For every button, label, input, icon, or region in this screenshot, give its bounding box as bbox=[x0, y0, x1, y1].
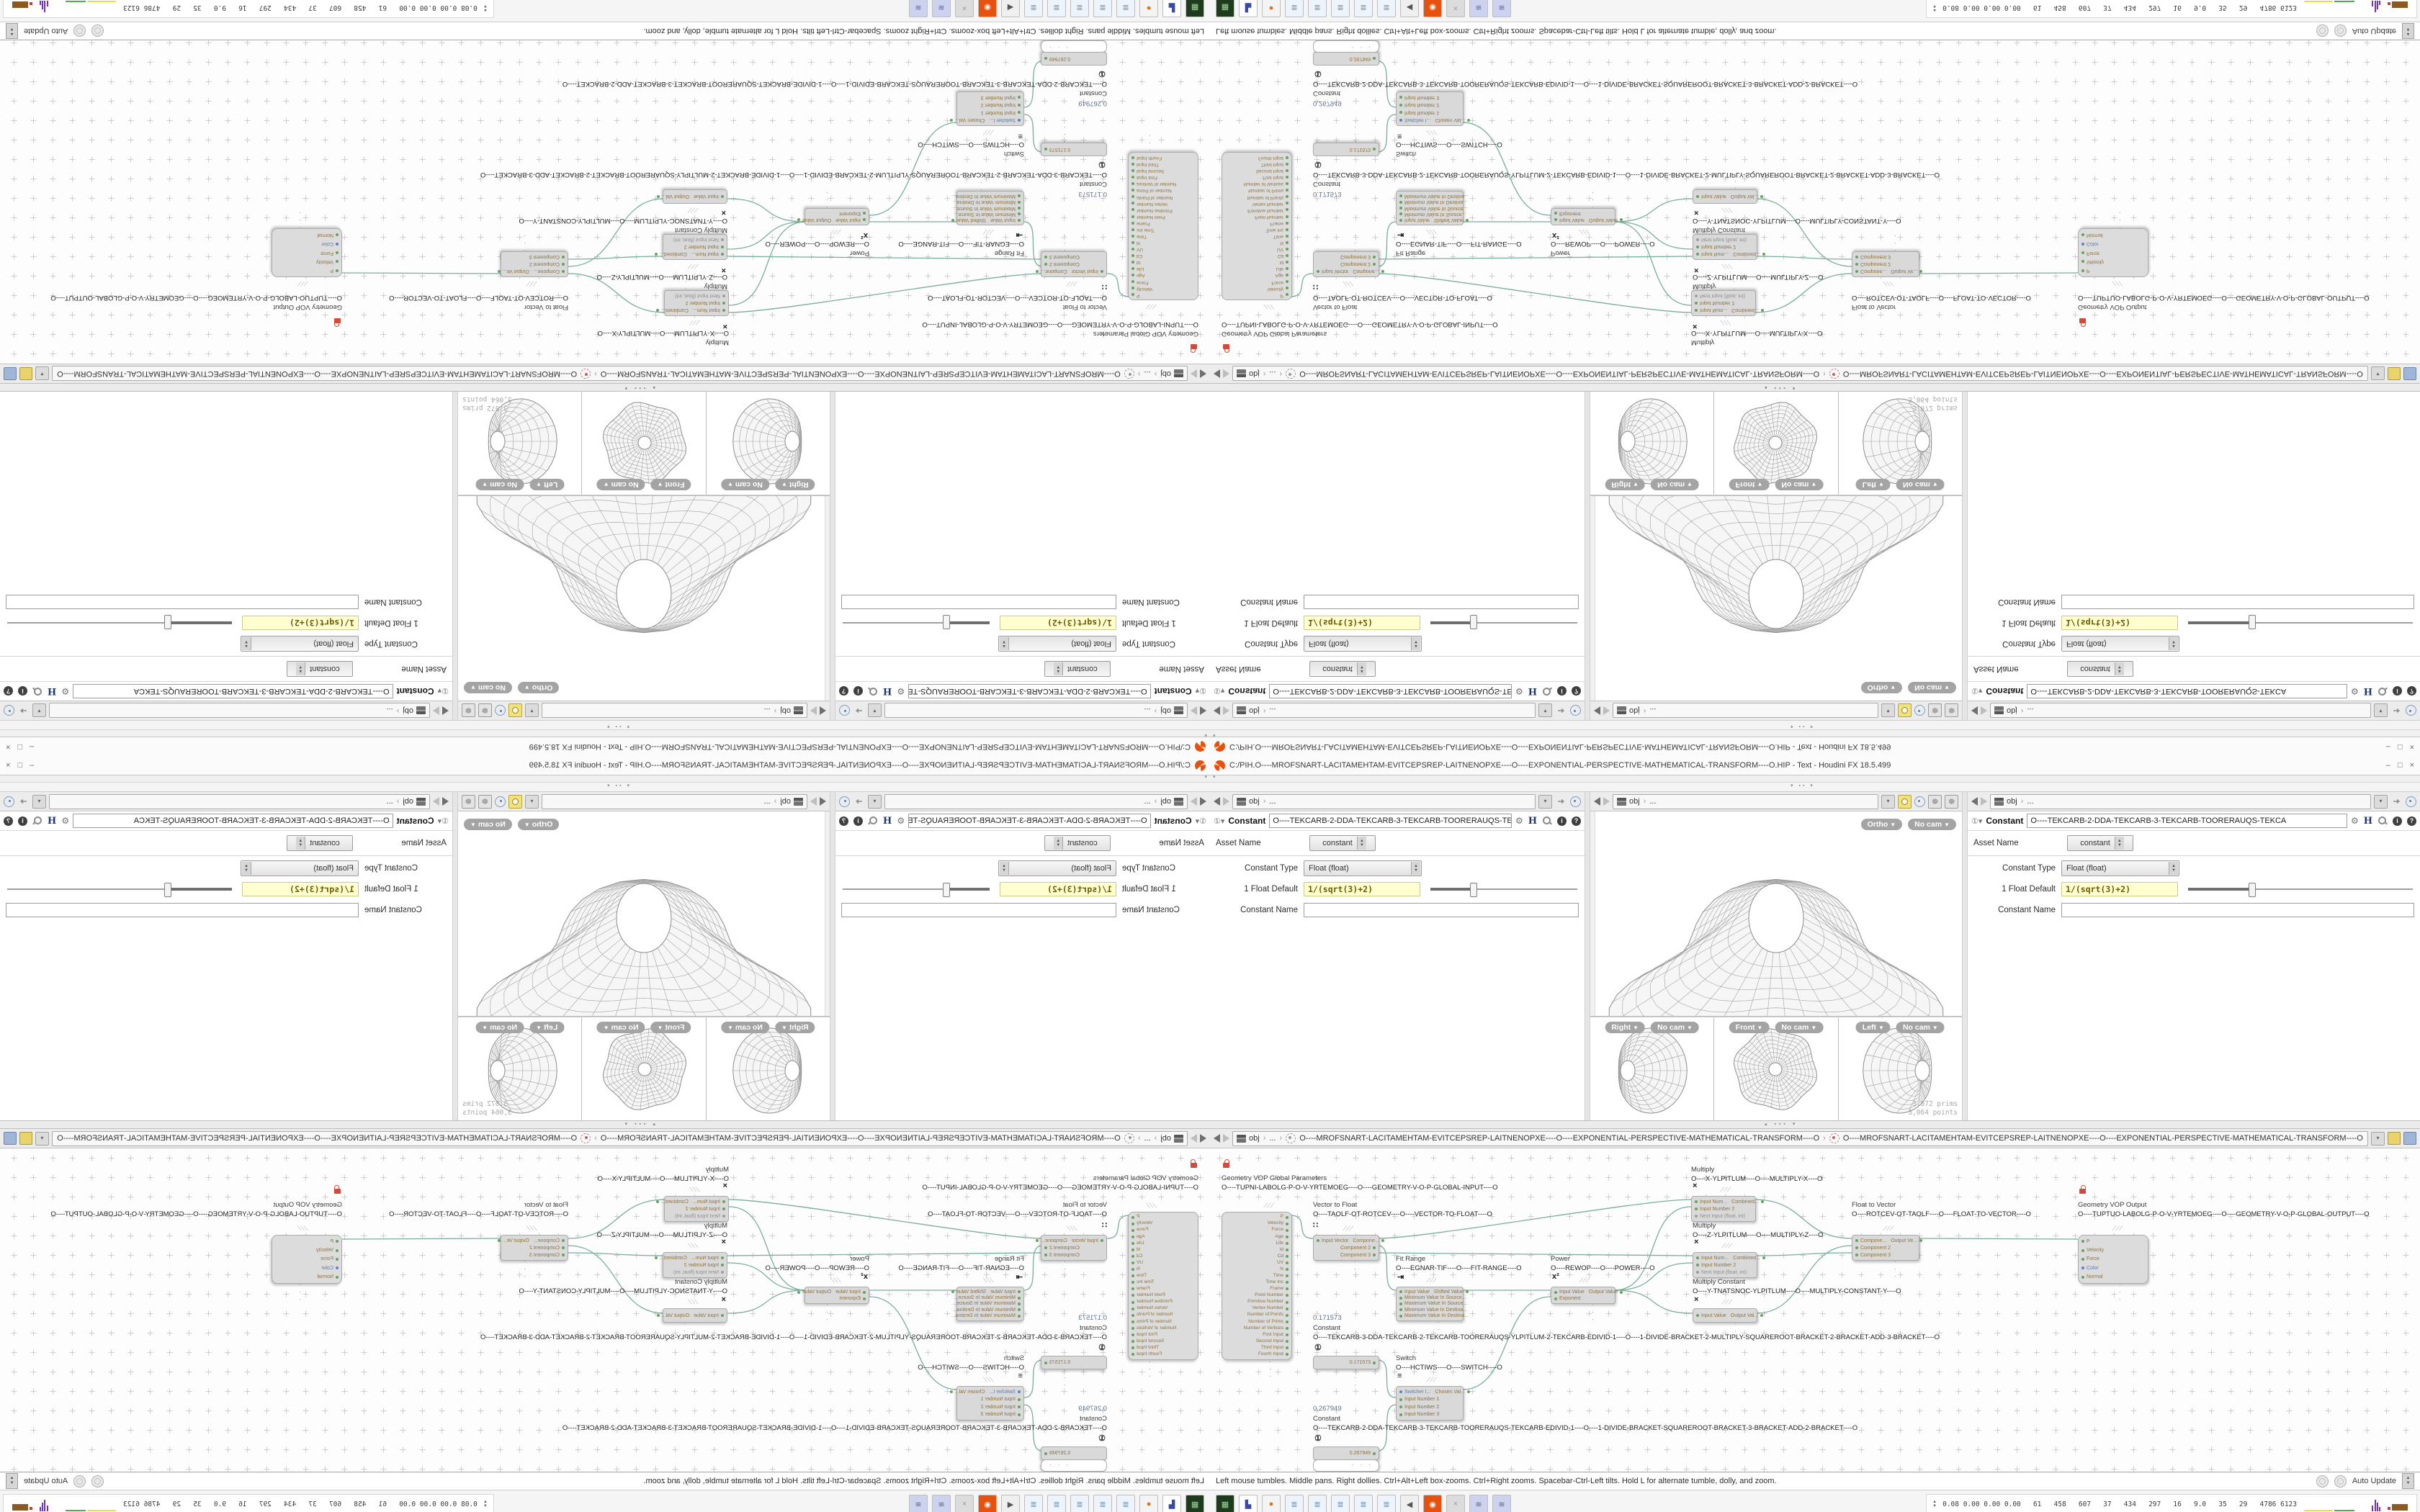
pin-icon[interactable] bbox=[1555, 796, 1567, 808]
horizontal-splitter[interactable]: ▴ ▪▪▪ ▾ bbox=[0, 383, 1210, 392]
node-body[interactable]: Compone...Output Ve...Component 2Compone… bbox=[1852, 1235, 1919, 1261]
path-dropdown[interactable]: ▾ bbox=[868, 704, 882, 718]
constant-type-select[interactable]: Float (float)▲▼ bbox=[2061, 636, 2179, 652]
network-overview-icon[interactable] bbox=[2403, 367, 2416, 380]
nav-forward-icon[interactable] bbox=[1191, 797, 1197, 806]
nav-back-icon[interactable] bbox=[1594, 797, 1600, 806]
node-body[interactable]: 0.171573 bbox=[1313, 1356, 1379, 1369]
breadcrumb[interactable]: obj › ... bbox=[1990, 794, 2371, 809]
node-edit-box[interactable]: · · · bbox=[1041, 1459, 1107, 1472]
slider-handle[interactable] bbox=[943, 883, 950, 897]
constant-type-select[interactable]: Float (float)▲▼ bbox=[2061, 860, 2179, 876]
maximize-button[interactable]: □ bbox=[2398, 742, 2403, 751]
constant-type-select[interactable]: Float (float)▲▼ bbox=[998, 636, 1116, 652]
help-icon[interactable]: ? bbox=[1572, 687, 1581, 696]
node-body[interactable]: Input VectorCompone...Component 2Compone… bbox=[1041, 1235, 1107, 1261]
view-menu-pill[interactable]: Right▼ bbox=[1605, 1022, 1645, 1033]
link-target-icon[interactable] bbox=[2406, 706, 2416, 716]
taskbar-firefox-icon[interactable]: ● bbox=[1262, 0, 1281, 17]
spinner-icon[interactable]: ▲▼ bbox=[2169, 637, 2178, 650]
help-icon[interactable]: ? bbox=[4, 687, 13, 696]
nav-back-icon[interactable] bbox=[1971, 706, 1978, 715]
taskbar-launcher-icon[interactable]: ▦ bbox=[1186, 0, 1204, 17]
node-body[interactable]: 0.267949 bbox=[1313, 1446, 1379, 1460]
spinner-icon[interactable]: ▲▼ bbox=[296, 837, 305, 850]
taskbar-inactive-icon[interactable]: × bbox=[955, 1495, 974, 1512]
network-overview-icon[interactable] bbox=[2403, 1132, 2416, 1145]
view-menu-pill[interactable]: Left▼ bbox=[529, 479, 564, 490]
node-edit-box[interactable]: · · · bbox=[1041, 40, 1107, 53]
nav-back-icon[interactable] bbox=[1214, 1134, 1220, 1143]
link-target-icon[interactable] bbox=[4, 796, 14, 807]
nav-forward-icon[interactable] bbox=[433, 706, 439, 715]
asset-name-select[interactable]: constant▲▼ bbox=[2067, 661, 2133, 677]
path-dropdown[interactable]: ▾ bbox=[525, 704, 539, 718]
node-body[interactable]: PVelocityForceColorNormal bbox=[272, 1235, 342, 1284]
viewport-right[interactable]: Right▼ No cam▼ bbox=[706, 1017, 830, 1120]
view-menu-pill[interactable]: Front▼ bbox=[651, 1022, 691, 1033]
nav-back-icon[interactable] bbox=[1214, 797, 1220, 806]
node-body[interactable]: 0.267949 bbox=[1041, 52, 1107, 66]
pin-icon[interactable] bbox=[17, 796, 30, 808]
pivot-icon[interactable] bbox=[495, 796, 506, 807]
nav-back-icon[interactable] bbox=[1200, 797, 1206, 806]
taskbar-launcher-icon[interactable]: ▦ bbox=[1216, 1495, 1234, 1512]
spinner-icon[interactable]: ▲▼ bbox=[1054, 662, 1063, 675]
shading-cube-icon[interactable] bbox=[1928, 795, 1942, 809]
slider-handle[interactable] bbox=[943, 615, 950, 629]
gear-icon[interactable]: ⚙ bbox=[61, 686, 69, 696]
info-icon[interactable]: i bbox=[18, 687, 27, 696]
node-body[interactable]: Input VectorCompone...Component 2Compone… bbox=[1313, 1235, 1379, 1261]
info-icon[interactable]: i bbox=[1557, 816, 1567, 826]
breadcrumb-ellipsis[interactable]: ... bbox=[1144, 1134, 1150, 1143]
view-menu-pill[interactable]: Left▼ bbox=[529, 1022, 564, 1033]
network-overview-icon[interactable] bbox=[4, 1132, 17, 1145]
node-name-field[interactable]: O----TEKCARB-2-DDA-TEKCARB-3-TEKCARB-TOO… bbox=[908, 684, 1151, 698]
gear-icon[interactable]: ⚙ bbox=[897, 686, 905, 696]
spinner-icon[interactable]: ▲▼ bbox=[1000, 637, 1009, 650]
camera-menu-pill[interactable]: No cam▼ bbox=[1651, 1022, 1699, 1033]
vertical-splitter[interactable] bbox=[1962, 392, 1968, 720]
snap-cube-icon[interactable] bbox=[462, 795, 475, 809]
network-overview-icon[interactable] bbox=[4, 367, 17, 380]
maximize-button[interactable]: □ bbox=[17, 742, 22, 751]
spinner-icon[interactable]: ▲▼ bbox=[1411, 637, 1420, 650]
camera-menu-pill[interactable]: No cam▼ bbox=[1775, 479, 1823, 490]
link-target-icon[interactable] bbox=[1570, 706, 1581, 716]
taskbar-save-icon[interactable]: ▙ bbox=[1162, 1495, 1181, 1512]
breadcrumb[interactable]: obj › ... bbox=[1613, 703, 1878, 719]
houdini-help-icon[interactable]: H bbox=[48, 816, 56, 827]
camera-menu-pill[interactable]: No cam▼ bbox=[1908, 819, 1956, 830]
taskbar-notes-icon[interactable]: ≣ bbox=[1093, 0, 1112, 17]
link-target-icon[interactable] bbox=[839, 706, 850, 716]
constant-name-field[interactable] bbox=[841, 595, 1116, 609]
viewport-right[interactable]: Right▼ No cam▼ bbox=[1590, 392, 1714, 495]
close-button[interactable]: × bbox=[2410, 742, 2414, 751]
path-dropdown[interactable]: ▾ bbox=[32, 795, 46, 809]
cook-icon[interactable] bbox=[73, 1475, 86, 1488]
taskbar-notes-icon[interactable]: ≣ bbox=[1024, 1495, 1043, 1512]
obj-chip[interactable]: obj bbox=[1160, 369, 1183, 379]
float-default-slider[interactable] bbox=[7, 616, 232, 629]
node-body[interactable]: Input Num...Combined...Input Number 2Nex… bbox=[1693, 1252, 1757, 1278]
pivot-icon[interactable] bbox=[495, 706, 506, 716]
network-breadcrumb[interactable]: obj › ... › O----MROFSNART-LACITAMEHTAM-… bbox=[52, 366, 1188, 382]
minimize-button[interactable]: – bbox=[2386, 761, 2390, 770]
minimize-button[interactable]: – bbox=[30, 742, 34, 751]
camera-menu-pill[interactable]: No cam▼ bbox=[597, 1022, 645, 1033]
info-icon[interactable]: i bbox=[1557, 687, 1567, 696]
camera-menu-pill[interactable]: No cam▼ bbox=[721, 1022, 769, 1033]
path-dropdown[interactable]: ▾ bbox=[1881, 795, 1895, 809]
taskbar-firefox-icon[interactable]: ● bbox=[1139, 0, 1158, 17]
taskbar-script-icon[interactable]: ≋ bbox=[932, 1495, 951, 1512]
help-icon[interactable]: ? bbox=[2407, 816, 2416, 826]
taskbar-save-icon[interactable]: ▙ bbox=[1162, 0, 1181, 17]
camera-menu-pill[interactable]: No cam▼ bbox=[597, 479, 645, 490]
slider-handle[interactable] bbox=[164, 883, 171, 897]
spinner-icon[interactable]: ▲▼ bbox=[2115, 837, 2124, 850]
node-body[interactable]: Input Num...Combined...Input Number 2Nex… bbox=[1691, 1196, 1756, 1222]
camera-menu-pill[interactable]: No cam▼ bbox=[1896, 479, 1945, 490]
collapsed-toolbar-bar[interactable]: ▾ ▪▪ ▾ bbox=[1210, 720, 2420, 729]
obj-chip[interactable]: obj bbox=[780, 706, 803, 716]
viewport-right[interactable]: Right▼ No cam▼ bbox=[706, 392, 830, 495]
breadcrumb-geo-node[interactable]: O----MROFSNART-LACITAMEHTAM-EVITCEPSREP-… bbox=[1299, 369, 1819, 378]
node-name-field[interactable]: O----TEKCARB-2-DDA-TEKCARB-3-TEKCARB-TOO… bbox=[2027, 814, 2347, 828]
breadcrumb-ellipsis[interactable]: ... bbox=[386, 706, 393, 715]
float-default-field[interactable]: 1/(sqrt(3)+2) bbox=[2061, 616, 2178, 630]
taskbar-notes-icon[interactable]: ≣ bbox=[1024, 0, 1043, 17]
taskbar-notes-icon[interactable]: ≣ bbox=[1093, 1495, 1112, 1512]
highlight-icon[interactable] bbox=[1898, 795, 1912, 809]
taskbar-notes-icon[interactable]: ≣ bbox=[1116, 1495, 1135, 1512]
breadcrumb[interactable]: obj › ... bbox=[1232, 794, 1536, 809]
close-button[interactable]: × bbox=[6, 761, 10, 770]
view-menu-pill[interactable]: Front▼ bbox=[1729, 479, 1770, 490]
camera-menu-pill[interactable]: No cam▼ bbox=[1775, 1022, 1823, 1033]
camera-menu-pill[interactable]: No cam▼ bbox=[464, 819, 512, 830]
node-body[interactable]: Input ValueOutput Val... bbox=[1693, 1308, 1757, 1323]
taskbar-script-icon[interactable]: ≋ bbox=[909, 0, 928, 17]
taskbar-launcher-icon[interactable]: ▦ bbox=[1216, 0, 1234, 17]
node-body[interactable]: PVelocityForceAgeLifeIdCdUVNTimeTime Inc… bbox=[1222, 152, 1292, 300]
spinner-icon[interactable]: ▲▼ bbox=[1357, 662, 1366, 675]
constant-name-field[interactable] bbox=[6, 595, 359, 609]
taskbar-notes-icon[interactable]: ≣ bbox=[1070, 0, 1089, 17]
node-body[interactable]: PVelocityForceAgeLifeIdCdUVNTimeTime Inc… bbox=[1222, 1212, 1292, 1360]
spinner-icon[interactable]: ▲▼ bbox=[296, 662, 305, 675]
camera-menu-pill[interactable]: No cam▼ bbox=[1908, 682, 1956, 693]
breadcrumb[interactable]: obj › ... bbox=[884, 703, 1188, 719]
maximize-button[interactable]: □ bbox=[17, 761, 22, 770]
network-editor[interactable]: Geometry VOP Global ParametersO----TUPNI… bbox=[1210, 1148, 2420, 1472]
collapsed-shelf-bar[interactable]: ▾ bbox=[0, 775, 1210, 783]
taskbar-notes-icon[interactable]: ≣ bbox=[1331, 0, 1350, 17]
float-default-field[interactable]: 1/(sqrt(3)+2) bbox=[242, 882, 359, 896]
memory-icon[interactable] bbox=[2316, 25, 2329, 37]
houdini-help-icon[interactable]: H bbox=[2364, 686, 2372, 697]
network-editor[interactable]: Geometry VOP Global ParametersO----TUPNI… bbox=[0, 40, 1210, 364]
float-default-slider[interactable] bbox=[2188, 616, 2413, 629]
pivot-icon[interactable] bbox=[1914, 706, 1925, 716]
nav-forward-icon[interactable] bbox=[1191, 369, 1197, 378]
camera-menu-pill[interactable]: No cam▼ bbox=[475, 479, 524, 490]
taskbar-houdini-icon[interactable]: ◉ bbox=[1423, 0, 1442, 17]
breadcrumb-vop-node[interactable]: O----MROFSNART-LACITAMEHTAM-EVITCEPSREP-… bbox=[1843, 1134, 2363, 1143]
houdini-help-icon[interactable]: H bbox=[883, 686, 892, 697]
obj-chip[interactable]: obj bbox=[1994, 796, 2017, 807]
vertical-splitter[interactable] bbox=[1585, 392, 1590, 720]
minimize-button[interactable]: – bbox=[2386, 742, 2390, 751]
viewport-right[interactable]: Right▼ No cam▼ bbox=[1590, 1017, 1714, 1120]
viewport-left[interactable]: Left▼ No cam▼ 3,072 prims 3,064 points bbox=[458, 1017, 581, 1120]
gear-icon[interactable]: ⚙ bbox=[1515, 816, 1523, 826]
spinner-icon[interactable]: ▲▼ bbox=[1357, 837, 1366, 850]
highlight-icon[interactable] bbox=[508, 795, 522, 809]
taskbar-notes-icon[interactable]: ≣ bbox=[1354, 1495, 1373, 1512]
horizontal-splitter[interactable]: ▴ ▪▪▪ ▾ bbox=[0, 1120, 1210, 1129]
node-body[interactable]: 0.171573 bbox=[1313, 143, 1379, 156]
pin-icon[interactable] bbox=[2390, 705, 2403, 717]
path-dropdown[interactable]: ▾ bbox=[1538, 795, 1552, 809]
info-icon[interactable]: i bbox=[18, 816, 27, 826]
breadcrumb-ellipsis[interactable]: ... bbox=[1144, 706, 1150, 715]
collapsed-toolbar-bar[interactable]: ▾ ▪▪ ▾ bbox=[1210, 783, 2420, 792]
splitter-grip-icon[interactable]: ▴ ▪▪▪ ▾ bbox=[622, 1121, 655, 1127]
network-editor[interactable]: Geometry VOP Global ParametersO----TUPNI… bbox=[1210, 40, 2420, 364]
vertical-splitter[interactable] bbox=[830, 792, 835, 1120]
float-default-field[interactable]: 1/(sqrt(3)+2) bbox=[242, 616, 359, 630]
spinner-icon[interactable]: ▲▼ bbox=[2169, 862, 2178, 875]
network-breadcrumb[interactable]: obj › ... › O----MROFSNART-LACITAMEHTAM-… bbox=[52, 1131, 1188, 1146]
constant-name-field[interactable] bbox=[1304, 903, 1579, 917]
node-body[interactable]: PVelocityForceAgeLifeIdCdUVNTimeTime Inc… bbox=[1128, 1212, 1198, 1360]
camera-menu-pill[interactable]: No cam▼ bbox=[464, 682, 512, 693]
obj-chip[interactable]: obj bbox=[1617, 796, 1640, 807]
node-body[interactable]: 0.171573 bbox=[1041, 1356, 1107, 1369]
nav-forward-icon[interactable] bbox=[433, 797, 439, 806]
path-dropdown[interactable]: ▾ bbox=[32, 704, 46, 718]
constant-type-select[interactable]: Float (float)▲▼ bbox=[241, 860, 359, 876]
camera-menu-pill[interactable]: No cam▼ bbox=[1896, 1022, 1945, 1033]
node-name-field[interactable]: O----TEKCARB-2-DDA-TEKCARB-3-TEKCARB-TOO… bbox=[908, 814, 1151, 828]
nav-back-icon[interactable] bbox=[820, 706, 826, 715]
cook-icon[interactable] bbox=[2334, 1475, 2347, 1488]
constant-name-field[interactable] bbox=[2061, 595, 2414, 609]
asset-name-select[interactable]: constant▲▼ bbox=[1044, 661, 1111, 677]
taskbar-save-icon[interactable]: ▙ bbox=[1239, 0, 1258, 17]
auto-update-spinner[interactable]: ▲▼ bbox=[6, 23, 18, 39]
taskbar-script-icon[interactable]: ≋ bbox=[909, 1495, 928, 1512]
collapsed-shelf-bar[interactable]: ▾ bbox=[1210, 775, 2420, 783]
breadcrumb-geo-node[interactable]: O----MROFSNART-LACITAMEHTAM-EVITCEPSREP-… bbox=[601, 369, 1121, 378]
breadcrumb-ellipsis[interactable]: ... bbox=[1144, 369, 1150, 378]
auto-update-spinner[interactable]: ▲▼ bbox=[2402, 1473, 2414, 1489]
taskbar-notes-icon[interactable]: ≣ bbox=[1308, 0, 1327, 17]
nav-forward-icon[interactable] bbox=[1223, 369, 1229, 378]
node-name-field[interactable]: O----TEKCARB-2-DDA-TEKCARB-3-TEKCARB-TOO… bbox=[1269, 684, 1512, 698]
node-body[interactable]: Input ValueShifted ValueMinimum Value In… bbox=[956, 1287, 1024, 1321]
constant-name-field[interactable] bbox=[2061, 903, 2414, 917]
collapsed-toolbar-bar[interactable]: ▾ ▪▪ ▾ bbox=[0, 783, 1210, 792]
view-menu-pill[interactable]: Right▼ bbox=[775, 479, 815, 490]
view-menu-pill[interactable]: Ortho▼ bbox=[518, 819, 560, 830]
memory-icon[interactable] bbox=[2316, 1475, 2329, 1488]
minimize-button[interactable]: – bbox=[30, 761, 34, 770]
breadcrumb-ellipsis[interactable]: ... bbox=[763, 797, 770, 806]
search-icon[interactable] bbox=[868, 686, 878, 696]
breadcrumb-ellipsis[interactable]: ... bbox=[1269, 369, 1276, 378]
perspective-viewport[interactable]: Ortho▼ No cam▼ bbox=[458, 811, 830, 1017]
nav-forward-icon[interactable] bbox=[1981, 706, 1987, 715]
node-name-field[interactable]: O----TEKCARB-2-DDA-TEKCARB-3-TEKCARB-TOO… bbox=[73, 684, 393, 698]
float-default-slider[interactable] bbox=[2188, 883, 2413, 896]
nav-forward-icon[interactable] bbox=[1223, 1134, 1229, 1143]
float-default-field[interactable]: 1/(sqrt(3)+2) bbox=[1304, 882, 1420, 896]
path-dropdown[interactable]: ▾ bbox=[35, 367, 49, 381]
pin-icon[interactable] bbox=[2390, 796, 2403, 808]
obj-chip[interactable]: obj bbox=[1237, 369, 1260, 379]
node-body[interactable]: Input ValueOutput Val... bbox=[663, 189, 727, 204]
link-target-icon[interactable] bbox=[839, 796, 850, 807]
nav-forward-icon[interactable] bbox=[810, 706, 817, 715]
link-target-icon[interactable] bbox=[2406, 796, 2416, 807]
vertical-splitter[interactable] bbox=[452, 792, 458, 1120]
gear-icon[interactable]: ⚙ bbox=[2351, 686, 2359, 696]
node-body[interactable]: PVelocityForceColorNormal bbox=[272, 228, 342, 277]
float-default-slider[interactable] bbox=[7, 883, 232, 896]
view-menu-pill[interactable]: Left▼ bbox=[1856, 479, 1891, 490]
taskbar-notes-icon[interactable]: ≣ bbox=[1047, 1495, 1066, 1512]
viewport-front[interactable]: Front▼ No cam▼ bbox=[581, 392, 705, 495]
node-body[interactable]: Switcher I...Chosen Val...Input Number 1… bbox=[1396, 91, 1464, 126]
breadcrumb[interactable]: obj › ... bbox=[884, 794, 1188, 809]
perspective-viewport[interactable]: Ortho▼ No cam▼ bbox=[1590, 811, 1962, 1017]
auto-update-label[interactable]: Auto Update bbox=[24, 27, 68, 35]
pin-icon[interactable] bbox=[853, 705, 865, 717]
pin-icon[interactable] bbox=[853, 796, 865, 808]
breadcrumb[interactable]: obj › ... bbox=[1232, 703, 1536, 719]
houdini-help-icon[interactable]: H bbox=[1528, 816, 1537, 827]
houdini-help-icon[interactable]: H bbox=[883, 816, 892, 827]
info-icon[interactable]: i bbox=[853, 816, 863, 826]
help-icon[interactable]: ? bbox=[1572, 816, 1581, 826]
view-menu-pill[interactable]: Ortho▼ bbox=[1861, 682, 1903, 693]
spinner-icon[interactable]: ▲▼ bbox=[1411, 862, 1420, 875]
node-body[interactable]: PVelocityForceColorNormal bbox=[2078, 1235, 2148, 1284]
slider-handle[interactable] bbox=[1470, 615, 1477, 629]
slider-handle[interactable] bbox=[2249, 883, 2256, 897]
memory-icon[interactable] bbox=[91, 1475, 104, 1488]
float-default-slider[interactable] bbox=[843, 883, 990, 896]
node-body[interactable]: Compone...Output Ve...Component 2Compone… bbox=[1852, 251, 1919, 277]
path-dropdown[interactable]: ▾ bbox=[2374, 704, 2388, 718]
taskbar-volume-icon[interactable]: ◀ bbox=[1400, 1495, 1419, 1512]
gear-icon[interactable]: ⚙ bbox=[2351, 816, 2359, 826]
node-name-field[interactable]: O----TEKCARB-2-DDA-TEKCARB-3-TEKCARB-TOO… bbox=[2027, 684, 2347, 698]
search-icon[interactable] bbox=[1542, 816, 1552, 826]
nav-forward-icon[interactable] bbox=[1191, 1134, 1197, 1143]
node-body[interactable]: Input ValueOutput ValueExponent bbox=[805, 1287, 869, 1304]
houdini-help-icon[interactable]: H bbox=[48, 686, 56, 697]
breadcrumb[interactable]: obj › ... bbox=[1990, 703, 2371, 719]
taskbar-inactive-icon[interactable]: × bbox=[1446, 1495, 1465, 1512]
viewport-left[interactable]: Left▼ No cam▼ 3,072 prims 3,064 points bbox=[1839, 392, 1962, 495]
view-menu-pill[interactable]: Front▼ bbox=[1729, 1022, 1770, 1033]
shading-cube-icon[interactable] bbox=[478, 795, 492, 809]
node-body[interactable]: Input ValueOutput ValueExponent bbox=[1551, 208, 1615, 225]
perspective-viewport[interactable]: Ortho▼ No cam▼ bbox=[458, 495, 830, 701]
path-dropdown[interactable]: ▾ bbox=[1881, 704, 1895, 718]
camera-menu-pill[interactable]: No cam▼ bbox=[1651, 479, 1699, 490]
horizontal-splitter[interactable]: ▴ ▪▪▪ ▾ bbox=[1210, 1120, 2420, 1129]
snap-cube-icon[interactable] bbox=[462, 704, 475, 718]
breadcrumb-geo-node[interactable]: O----MROFSNART-LACITAMEHTAM-EVITCEPSREP-… bbox=[601, 1134, 1121, 1143]
node-edit-box[interactable]: · · · bbox=[1313, 40, 1379, 53]
auto-update-label[interactable]: Auto Update bbox=[24, 1477, 68, 1485]
taskbar-notes-icon[interactable]: ≣ bbox=[1285, 0, 1304, 17]
memory-icon[interactable] bbox=[91, 25, 104, 37]
gear-icon[interactable]: ⚙ bbox=[1515, 686, 1523, 696]
help-icon[interactable]: ? bbox=[2407, 687, 2416, 696]
taskbar-notes-icon[interactable]: ≣ bbox=[1070, 1495, 1089, 1512]
taskbar-notes-icon[interactable]: ≣ bbox=[1285, 1495, 1304, 1512]
node-body[interactable]: Input ValueOutput ValueExponent bbox=[1551, 1287, 1615, 1304]
vertical-splitter[interactable] bbox=[830, 392, 835, 720]
nav-back-icon[interactable] bbox=[1214, 706, 1220, 715]
network-breadcrumb[interactable]: obj › ... › O----MROFSNART-LACITAMEHTAM-… bbox=[1232, 366, 2368, 382]
node-body[interactable]: Input VectorCompone...Component 2Compone… bbox=[1313, 251, 1379, 277]
taskbar-script-icon[interactable]: ≋ bbox=[932, 0, 951, 17]
taskbar-volume-icon[interactable]: ◀ bbox=[1001, 0, 1020, 17]
obj-chip[interactable]: obj bbox=[1237, 796, 1260, 807]
constant-name-field[interactable] bbox=[841, 903, 1116, 917]
constant-type-select[interactable]: Float (float)▲▼ bbox=[1304, 860, 1422, 876]
close-button[interactable]: × bbox=[2410, 761, 2414, 770]
viewport-front[interactable]: Front▼ No cam▼ bbox=[1714, 392, 1838, 495]
taskbar-notes-icon[interactable]: ≣ bbox=[1377, 0, 1396, 17]
search-icon[interactable] bbox=[868, 816, 878, 826]
view-menu-pill[interactable]: Left▼ bbox=[1856, 1022, 1891, 1033]
auto-update-label[interactable]: Auto Update bbox=[2352, 27, 2396, 35]
breadcrumb-ellipsis[interactable]: ... bbox=[1649, 706, 1656, 715]
cook-icon[interactable] bbox=[2334, 25, 2347, 37]
taskbar-houdini-icon[interactable]: ◉ bbox=[978, 1495, 997, 1512]
float-default-slider[interactable] bbox=[1430, 616, 1577, 629]
vertical-splitter[interactable] bbox=[452, 392, 458, 720]
path-dropdown[interactable]: ▾ bbox=[2371, 367, 2385, 381]
auto-update-label[interactable]: Auto Update bbox=[2352, 1477, 2396, 1485]
breadcrumb-ellipsis[interactable]: ... bbox=[763, 706, 770, 715]
auto-update-spinner[interactable]: ▲▼ bbox=[2402, 23, 2414, 39]
network-breadcrumb[interactable]: obj › ... › O----MROFSNART-LACITAMEHTAM-… bbox=[1232, 1131, 2368, 1146]
node-body[interactable]: PVelocityForceColorNormal bbox=[2078, 228, 2148, 277]
asset-name-select[interactable]: constant▲▼ bbox=[1309, 835, 1376, 851]
nav-back-icon[interactable] bbox=[1214, 369, 1220, 378]
pin-icon[interactable] bbox=[17, 705, 30, 717]
path-dropdown[interactable]: ▾ bbox=[35, 1132, 49, 1146]
shading-cube-icon[interactable] bbox=[478, 704, 492, 718]
float-default-slider[interactable] bbox=[843, 616, 990, 629]
taskbar-script-icon[interactable]: ≋ bbox=[1469, 0, 1488, 17]
spinner-icon[interactable]: ▲▼ bbox=[1054, 837, 1063, 850]
breadcrumb-ellipsis[interactable]: ... bbox=[1649, 797, 1656, 806]
node-body[interactable]: Input ValueOutput Val... bbox=[663, 1308, 727, 1323]
splitter-grip-icon[interactable]: ▴ ▪▪▪ ▾ bbox=[1765, 385, 1798, 391]
